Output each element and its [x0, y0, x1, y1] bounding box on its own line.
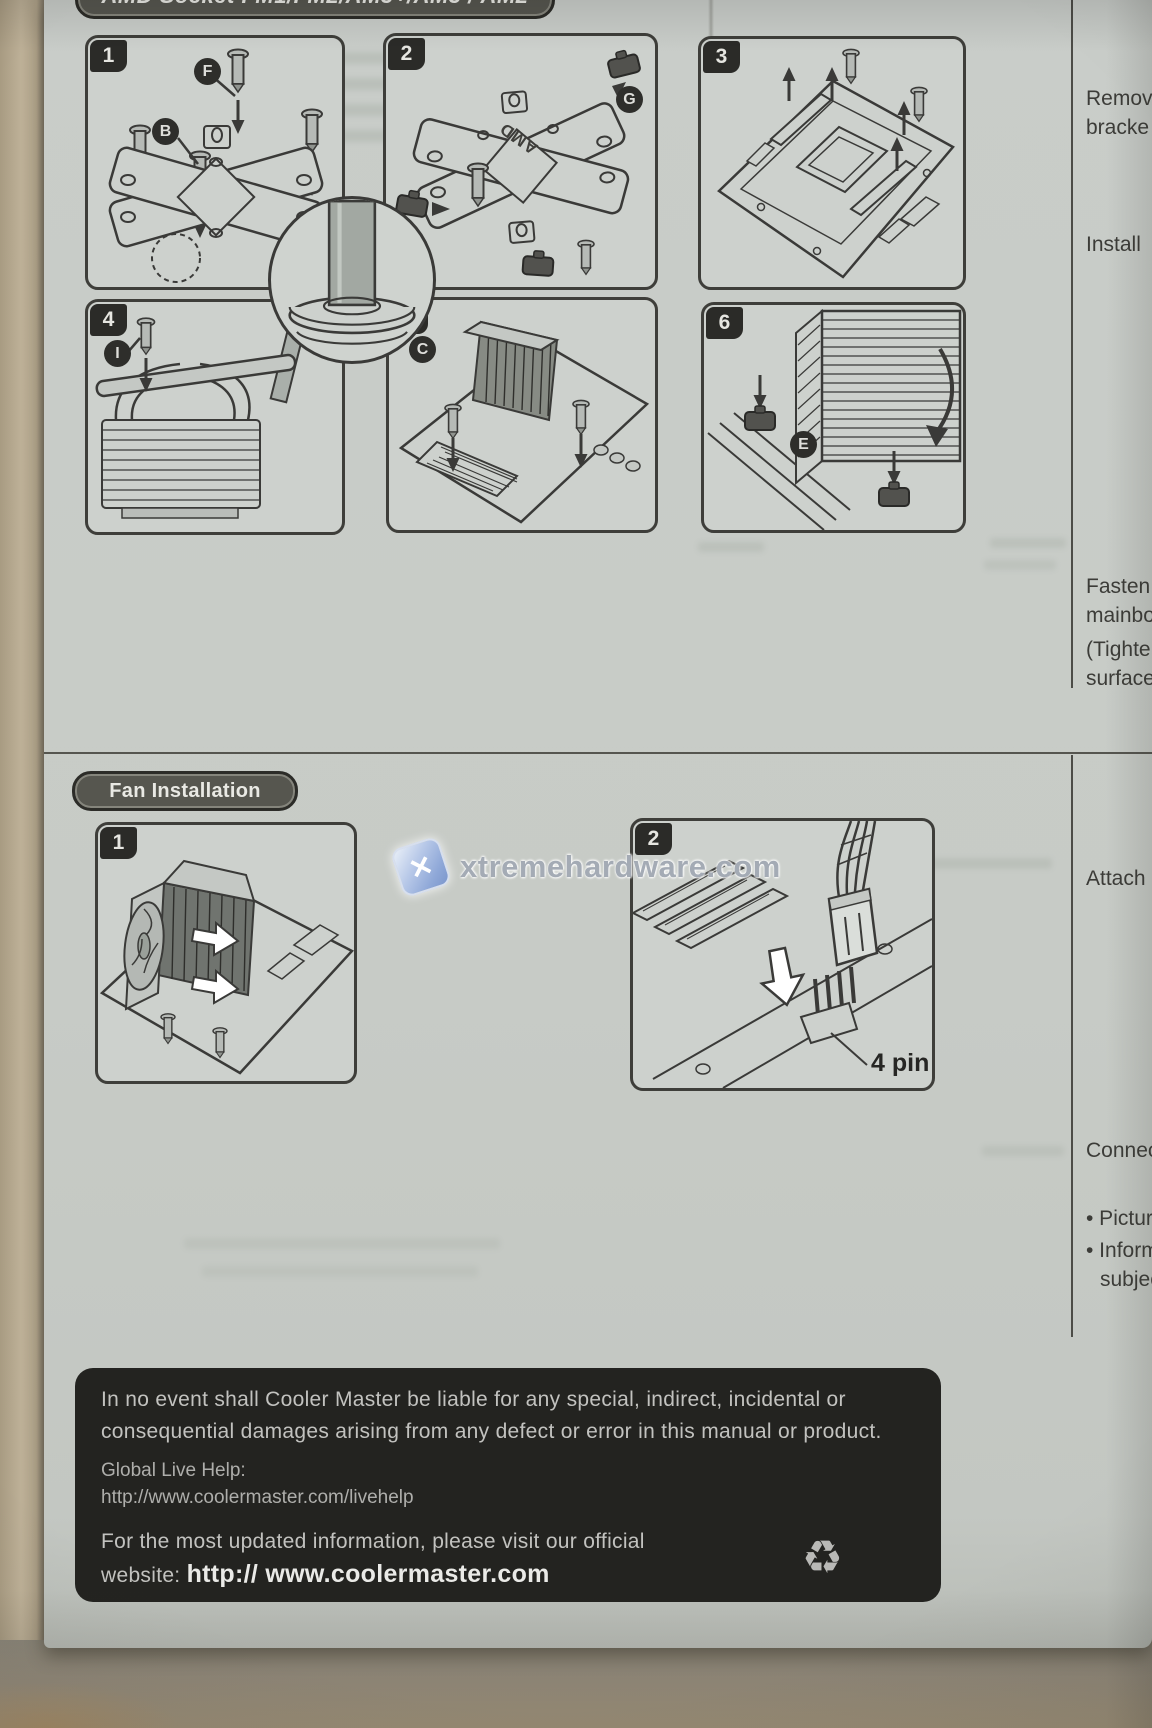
fan-step-panel-1: 1 — [95, 822, 357, 1084]
step-number-badge: 4 — [90, 304, 127, 336]
margin-note-picture: • Picture — [1086, 1204, 1152, 1233]
watermark: ✕ xtremehardware.com — [396, 838, 781, 896]
part-label-e: E — [790, 431, 817, 458]
note-line: bracke — [1086, 113, 1152, 142]
standoff-detail-diagram — [271, 199, 433, 361]
disclaimer-line: consequential damages arising from any d… — [101, 1416, 915, 1448]
note-line: Connec — [1086, 1136, 1152, 1165]
margin-note-information: • Inform subjec — [1086, 1236, 1152, 1294]
table-surface-tint — [0, 1668, 300, 1728]
note-line: Install — [1086, 230, 1141, 259]
note-line: mainboa — [1086, 601, 1152, 630]
margin-note-install: Install — [1086, 230, 1141, 259]
mainboard-remove-diagram — [701, 39, 963, 287]
heatsink-install-diagram — [389, 300, 655, 530]
column-divider-bottom — [1071, 755, 1073, 1337]
paper-folded-edge — [0, 0, 46, 1728]
website-prefix: website: — [101, 1564, 180, 1587]
note-line: Fasten t — [1086, 572, 1152, 601]
part-label-b: B — [152, 118, 179, 145]
note-line: Remov — [1086, 84, 1152, 113]
step-number-badge: 3 — [703, 41, 740, 73]
global-live-help-label: Global Live Help: — [101, 1457, 915, 1484]
part-label-i: I — [104, 340, 131, 367]
section-divider — [44, 752, 1152, 754]
note-line: • Picture — [1086, 1204, 1152, 1233]
xtremehardware-x-icon: ✕ — [389, 835, 452, 898]
step-panel-5: 5 C — [386, 297, 658, 533]
note-line: surface — [1086, 664, 1152, 693]
website-line: website: http:// www.coolermaster.com — [101, 1558, 915, 1592]
fan-installation-header: Fan Installation — [72, 771, 298, 811]
website-url: http:// www.coolermaster.com — [187, 1560, 550, 1588]
step-panel-6: 6 E — [701, 302, 966, 533]
socket-section-title: AMD Socket FM1/FM2/AM3+/AM3 / AM2 — [101, 0, 528, 9]
part-label-c: C — [409, 336, 436, 363]
margin-note-remove: Remov bracke — [1086, 84, 1152, 142]
step-number-badge: 2 — [388, 38, 425, 70]
note-line: (Tighte — [1086, 635, 1152, 664]
fan-attach-diagram — [98, 825, 354, 1081]
x-glyph: ✕ — [405, 848, 438, 887]
updated-info-line: For the most updated information, please… — [101, 1526, 915, 1558]
manual-photo: AMD Socket FM1/FM2/AM3+/AM3 / AM2 — [0, 0, 1152, 1728]
recycle-icon: ♻ — [802, 1534, 843, 1580]
standoff-magnifier-detail — [268, 196, 436, 364]
margin-note-connect: Connec — [1086, 1136, 1152, 1165]
margin-note-fasten: Fasten t mainboa (Tighte surface — [1086, 572, 1152, 693]
fin-clip-diagram — [704, 305, 963, 530]
live-help-url: http://www.coolermaster.com/livehelp — [101, 1484, 915, 1511]
four-pin-label: 4 pin — [871, 1049, 929, 1078]
note-line: Attach — [1086, 864, 1146, 893]
column-divider-top — [1071, 0, 1073, 688]
note-line: • Inform — [1086, 1236, 1152, 1265]
part-label-f: F — [194, 58, 221, 85]
note-line: subjec — [1100, 1265, 1152, 1294]
step-number-badge: 6 — [706, 307, 743, 339]
margin-note-attach: Attach — [1086, 864, 1146, 893]
step-panel-3: 3 — [698, 36, 966, 290]
watermark-text: xtremehardware.com — [460, 849, 781, 885]
socket-section-header: AMD Socket FM1/FM2/AM3+/AM3 / AM2 — [75, 0, 555, 19]
step-number-badge: 1 — [90, 40, 127, 72]
fan-installation-title: Fan Installation — [109, 780, 260, 803]
part-label-g: G — [616, 86, 643, 113]
disclaimer-line: In no event shall Cooler Master be liabl… — [101, 1384, 915, 1416]
disclaimer-box: In no event shall Cooler Master be liabl… — [75, 1368, 941, 1602]
step-number-badge: 1 — [100, 827, 137, 859]
